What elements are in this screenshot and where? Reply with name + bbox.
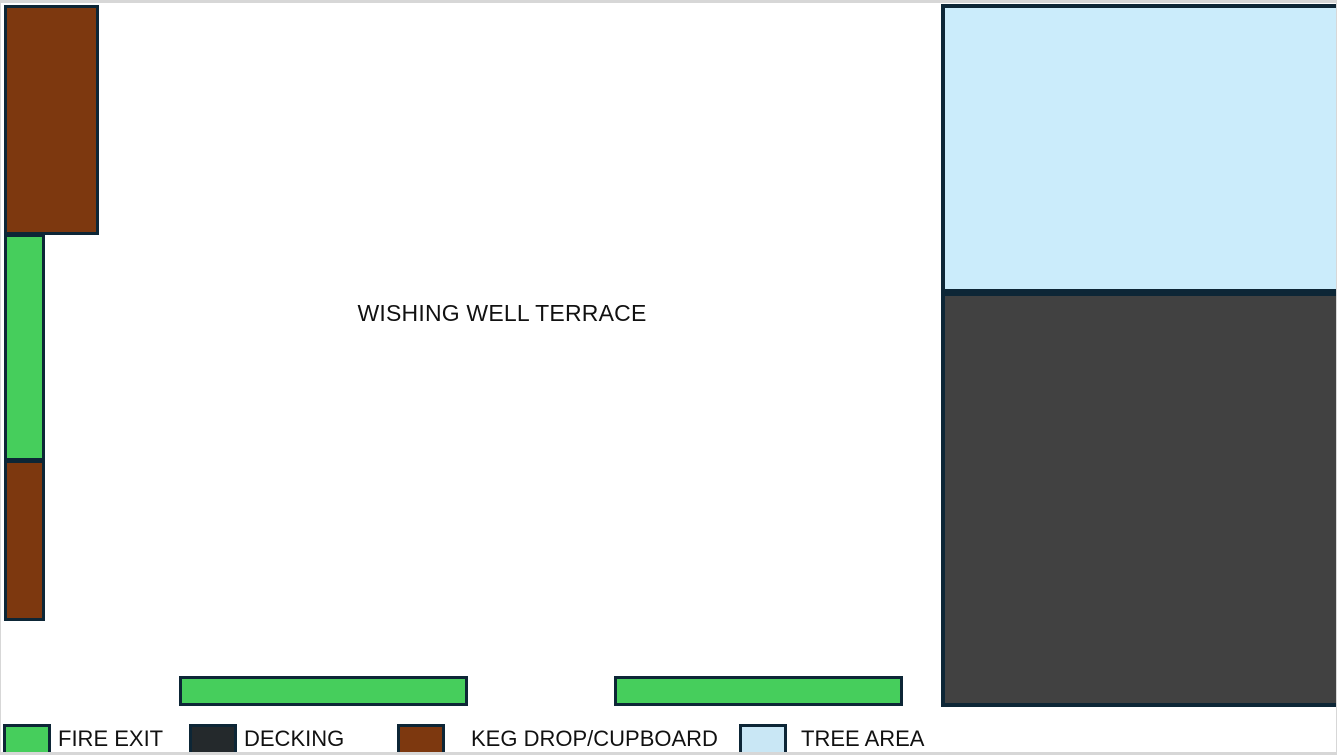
map-title: WISHING WELL TERRACE [332,300,672,327]
zone-tree-area [941,4,1337,293]
zone-fire-exit-bottom-right [614,676,903,706]
zone-keg-drop-lower-left [4,460,45,621]
legend-label-tree-area: TREE AREA [801,726,924,752]
zone-fire-exit-left [4,234,45,461]
legend-item-decking: DECKING [189,723,344,755]
decking-swatch [189,724,237,755]
terrace-map: WISHING WELL TERRACE FIRE EXIT DECKING K… [0,0,1337,755]
legend-label-fire-exit: FIRE EXIT [58,726,163,752]
zone-fire-exit-bottom-left [179,676,468,706]
legend-item-keg-drop: KEG DROP/CUPBOARD [397,723,718,755]
legend-item-tree-area: TREE AREA [739,723,924,755]
zone-decking [941,292,1337,707]
legend-item-fire-exit: FIRE EXIT [3,723,163,755]
keg-drop-swatch [397,724,445,755]
tree-area-swatch [739,724,787,755]
legend-label-keg-drop: KEG DROP/CUPBOARD [471,726,718,752]
zone-keg-drop-upper-left [4,5,99,235]
fire-exit-swatch [3,724,51,755]
legend-label-decking: DECKING [244,726,344,752]
